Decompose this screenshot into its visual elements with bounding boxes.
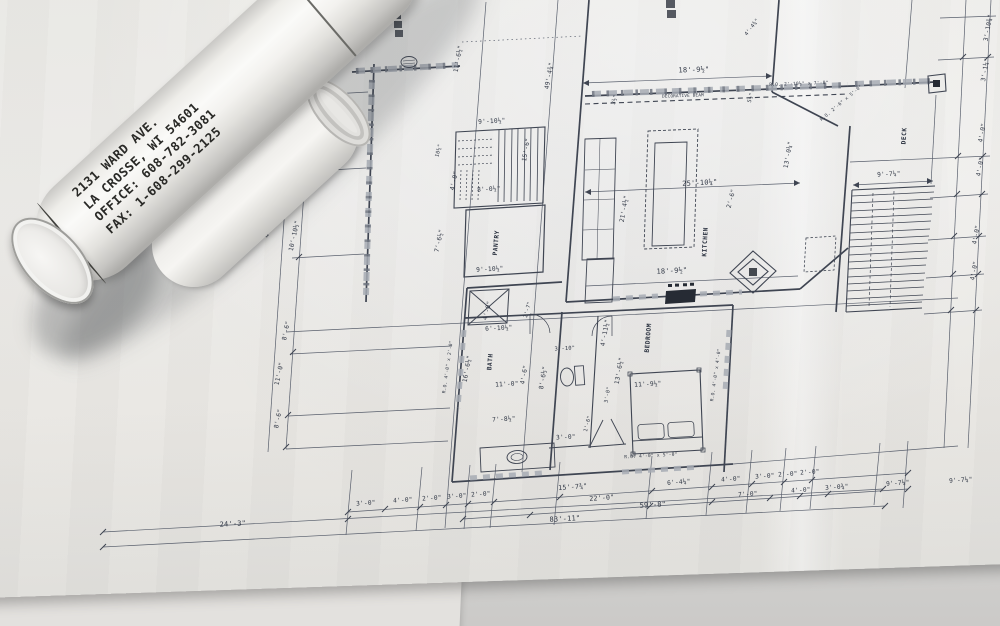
dimension-label: 10½" <box>433 143 443 158</box>
dimension-label: R.O. 4'-0" x 4'-0" <box>709 348 722 402</box>
dimension-label: 8'-6" <box>273 408 284 429</box>
dimension-label: 5½" <box>746 92 755 103</box>
dimension-label: R.O. 2'-6" x 5'-0" <box>819 84 864 123</box>
dimension-label: 4'-0" <box>482 300 494 321</box>
dimension-label: 3'-0¾" <box>825 482 849 492</box>
dimension-label: 24'-3" <box>219 519 246 528</box>
dimension-label: 15'-7¾" <box>558 482 588 492</box>
dimension-label: 11'-0" <box>274 361 286 386</box>
dimension-label: 4'-0" <box>969 260 979 281</box>
dimension-label: 4'-11½" <box>599 318 612 346</box>
dimension-label: 8'-6½" <box>537 365 549 390</box>
dimension-label: 21'-4½" <box>618 194 631 222</box>
dimension-label: 2'-7" <box>523 301 533 319</box>
nook-cabinet <box>804 236 836 272</box>
room-label: BEDROOM <box>644 323 654 353</box>
toilet <box>560 368 574 387</box>
dimension-label: 22'-0" <box>589 493 615 503</box>
dimension-label: 3'-10¾" <box>982 13 995 41</box>
dimension-label: 4'-4¾" <box>744 18 761 37</box>
vanity <box>480 443 555 472</box>
dimension-label: 3'-0" <box>447 492 467 500</box>
dimension-label: 4'-0" <box>977 122 987 143</box>
dimension-label: 2'-0" <box>800 468 820 476</box>
bed-pillow <box>668 421 695 437</box>
dimension-label: 11'-6½" <box>452 44 465 72</box>
blueprint-photo: 5'-0"10'-10½"8'-6"11'-0"8'-6"41'-0"24'-3… <box>0 0 1000 626</box>
dimension-label: 8'-0½" <box>477 184 501 193</box>
deck-stairs <box>846 74 946 307</box>
room-label: PANTRY <box>492 230 501 256</box>
room-label: KITCHEN <box>701 227 710 257</box>
dimension-label: 8'-6" <box>281 320 292 341</box>
dimension-label: 4'-6" <box>519 364 529 385</box>
dimension-label: 9'-10½" <box>478 116 506 125</box>
dimension-label: 3'-0" <box>604 386 613 403</box>
dimension-label: 9'-7¼" <box>877 169 901 178</box>
dimension-label: 9'-10½" <box>476 264 504 273</box>
dimension-label: 59'-8" <box>639 500 666 509</box>
dimension-label: 7'-0" <box>738 490 758 498</box>
range <box>665 289 696 304</box>
bed-pillow <box>638 423 665 439</box>
dimension-label: 49'-4¾" <box>543 61 556 89</box>
dimension-label: 2'-0" <box>422 494 442 502</box>
dimension-label: 3'-0" <box>356 499 376 507</box>
dimension-label: 3'-0" <box>556 433 576 441</box>
bath-sink <box>507 450 528 464</box>
dimension-label: 13'-6½" <box>613 356 626 384</box>
room-label: DECK <box>901 127 909 144</box>
closet-doors <box>588 419 626 447</box>
dimension-label: 7'-8½" <box>492 414 516 423</box>
dimension-label: 2'-6" <box>726 188 738 209</box>
dimension-label: 9'-7¼" <box>886 478 910 488</box>
dimension-label: 6'-4¼" <box>667 477 691 487</box>
dimension-label: 7'-6½" <box>433 228 446 253</box>
dimension-label: 4'-0" <box>791 486 811 494</box>
dimension-label: 2'-0" <box>778 470 798 478</box>
dimension-label: 4'-0" <box>975 156 985 177</box>
dimension-label: 18'-9½" <box>678 65 709 74</box>
dimension-label: 4'-0" <box>449 170 460 191</box>
dimension-label: 2'-0" <box>471 490 491 498</box>
dimension-label: R.O. 4'-0" x 2'-0" <box>441 340 454 394</box>
dimension-label: 11'-9½" <box>634 379 662 388</box>
kitchen-island-counter <box>652 142 687 246</box>
dimension-label: 18'-9½" <box>656 266 687 276</box>
dimension-label: 4'-0" <box>721 475 741 483</box>
dimension-label: 83'-11" <box>549 514 580 524</box>
dimension-label: 13'-0¼" <box>782 140 795 168</box>
dimension-label: 3'-10" <box>554 345 575 352</box>
dimension-label: 11'-0" <box>495 380 519 388</box>
dimension-label: 9'-7¼" <box>949 475 973 485</box>
dimension-label: 4'-0" <box>393 496 413 504</box>
room-label: BATH <box>486 353 494 370</box>
kitchen-cabinets <box>582 138 616 303</box>
dimension-label: 3'-0" <box>755 472 775 480</box>
dimension-label: 6'-10½" <box>485 323 513 332</box>
dimension-label: 10'-10½" <box>287 219 301 251</box>
dimension-label: 3'-1¼" <box>979 57 991 82</box>
wall-hatch-layer <box>356 65 933 478</box>
